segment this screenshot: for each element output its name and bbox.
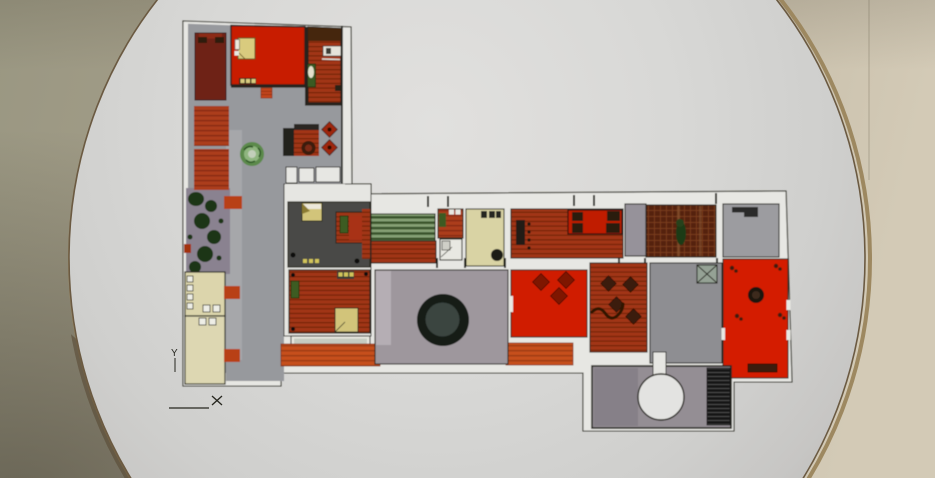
svg-text:Y: Y — [171, 348, 178, 359]
